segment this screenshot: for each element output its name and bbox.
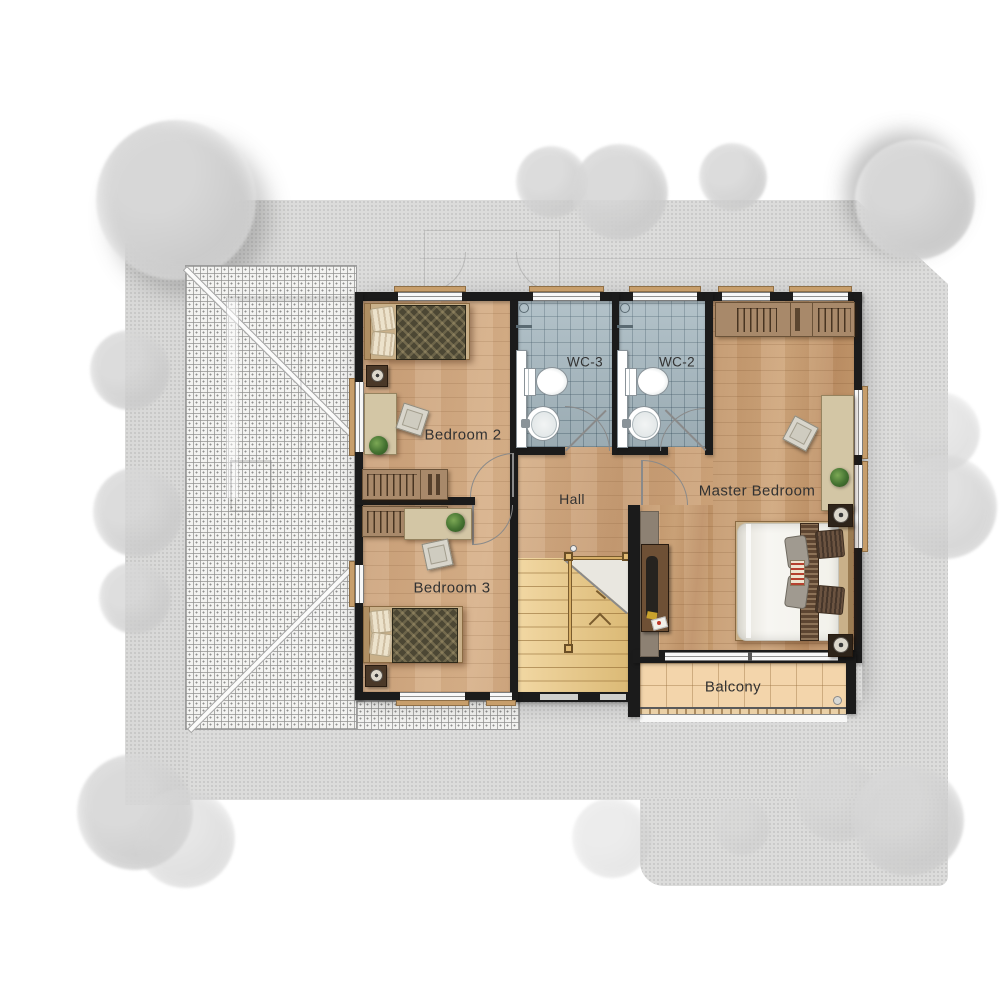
sink-basin <box>531 411 557 438</box>
tree-icon <box>855 140 975 260</box>
pillow <box>369 632 394 658</box>
window <box>793 292 848 301</box>
toilet-tank <box>625 368 637 396</box>
lamp-icon <box>833 507 849 523</box>
tree-icon <box>714 799 770 855</box>
room-label-master-bedroom: Master Bedroom <box>699 483 815 500</box>
room-label-wc2: WC-2 <box>659 355 695 370</box>
sink-basin <box>632 411 658 438</box>
pillow <box>369 305 396 332</box>
tree-icon <box>699 143 767 211</box>
shower-symbol-icon <box>519 303 529 313</box>
stair-dot <box>570 545 577 552</box>
wardrobe-divider <box>790 303 791 336</box>
book-dot <box>657 621 661 625</box>
shower-symbol-icon <box>620 303 630 313</box>
toilet-bowl-icon <box>637 367 669 396</box>
tree-icon <box>852 764 964 876</box>
towel-bar-icon <box>617 325 633 328</box>
chair <box>421 538 453 570</box>
wardrobe-shelf-icon <box>436 474 440 495</box>
bed-headboard <box>848 521 853 641</box>
ghost-floor-line <box>226 296 354 302</box>
toilet-tank <box>524 368 536 396</box>
room-label-bedroom3: Bedroom 3 <box>414 580 491 597</box>
sink-tap-icon <box>622 419 631 428</box>
wardrobe-divider <box>812 303 813 336</box>
room-label-bedroom2: Bedroom 2 <box>425 427 502 444</box>
lamp-icon <box>833 637 849 653</box>
tree-icon <box>572 798 652 878</box>
tree-icon <box>572 144 668 240</box>
window <box>533 292 600 301</box>
plant-icon <box>446 513 465 532</box>
tree-icon <box>135 788 235 888</box>
pillow <box>815 585 845 615</box>
wardrobe-shelf-icon <box>428 474 432 495</box>
towel-bar-icon <box>516 325 532 328</box>
window <box>398 292 462 301</box>
balcony-sliding-door-mullion <box>748 652 752 661</box>
window <box>633 292 697 301</box>
wall-interior-wc2-east <box>705 292 713 455</box>
wardrobe-hangers-icon <box>737 308 777 332</box>
window <box>355 382 364 452</box>
tree-icon <box>96 120 256 280</box>
wardrobe-hangers-icon <box>367 474 417 496</box>
window <box>355 565 364 603</box>
door-leaf <box>641 460 643 505</box>
accent-pillow <box>790 560 805 586</box>
tree-icon <box>893 455 997 559</box>
tree-icon <box>99 562 171 634</box>
plant-icon <box>830 468 849 487</box>
toilet-bowl-icon <box>536 367 568 396</box>
stair-handrail <box>568 556 628 560</box>
window <box>722 292 770 301</box>
wall-balcony-east <box>846 652 856 714</box>
room-label-balcony: Balcony <box>705 679 761 696</box>
balcony-outer-strip <box>640 715 847 722</box>
floor-plan-canvas: Bedroom 2 WC-3 WC-2 Master Bedroom Hall … <box>0 0 1000 1000</box>
pillow <box>369 609 393 634</box>
lamp-icon <box>370 669 383 682</box>
duvet-fold <box>746 524 751 638</box>
window-sill <box>486 700 516 706</box>
wardrobe-shelf-icon <box>795 308 800 331</box>
tree-icon <box>90 330 170 410</box>
window <box>600 694 626 700</box>
window-sill <box>396 700 469 706</box>
window <box>854 390 863 455</box>
tree-icon <box>93 467 183 557</box>
wardrobe-hangers-icon <box>818 308 851 332</box>
pillow <box>370 331 396 357</box>
room-label-wc3: WC-3 <box>567 355 603 370</box>
door-leaf <box>512 453 514 497</box>
door-leaf <box>472 505 474 545</box>
shower-screen <box>617 350 628 448</box>
desk <box>821 395 854 511</box>
balcony-drain <box>833 696 842 705</box>
stair-handrail <box>568 556 572 648</box>
ghost-floor-line <box>300 330 302 500</box>
wall-interior-master-west <box>628 505 640 717</box>
wall-interior-wc3-south <box>518 447 565 455</box>
stair-newel-post <box>564 644 573 653</box>
pillow <box>815 529 845 559</box>
tv-icon <box>646 556 658 618</box>
stair-newel-post <box>564 552 573 561</box>
bed-blanket <box>396 305 466 360</box>
balcony-railing <box>640 707 847 715</box>
plant-icon <box>369 436 388 455</box>
shower-screen <box>516 350 527 448</box>
bed-blanket <box>392 608 458 663</box>
window <box>854 465 863 548</box>
lamp-icon <box>371 369 384 382</box>
window <box>540 694 578 700</box>
sink-tap-icon <box>521 419 530 428</box>
wardrobe-divider <box>420 470 421 499</box>
ghost-floor-outline <box>230 460 272 512</box>
room-label-hall: Hall <box>559 491 585 507</box>
